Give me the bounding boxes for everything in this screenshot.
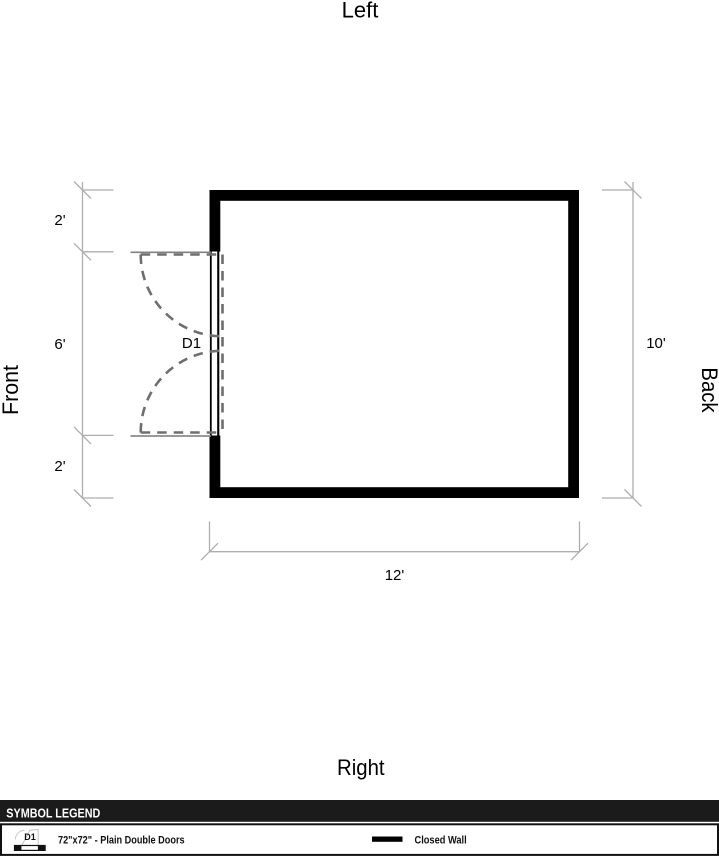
svg-text:Right: Right <box>337 755 385 780</box>
svg-text:12': 12' <box>385 567 405 584</box>
svg-text:2': 2' <box>54 458 65 475</box>
svg-text:Front: Front <box>0 365 23 415</box>
svg-text:Back: Back <box>697 367 719 413</box>
svg-text:72"x72" - Plain Double Doors: 72"x72" - Plain Double Doors <box>58 835 185 847</box>
svg-text:10': 10' <box>646 335 666 352</box>
svg-text:Left: Left <box>342 0 379 23</box>
svg-text:2': 2' <box>54 212 65 229</box>
svg-text:Closed Wall: Closed Wall <box>415 834 467 846</box>
svg-text:6': 6' <box>54 336 65 353</box>
svg-text:D1: D1 <box>24 832 36 843</box>
svg-text:D1: D1 <box>182 335 201 352</box>
svg-text:SYMBOL LEGEND: SYMBOL LEGEND <box>6 807 100 821</box>
